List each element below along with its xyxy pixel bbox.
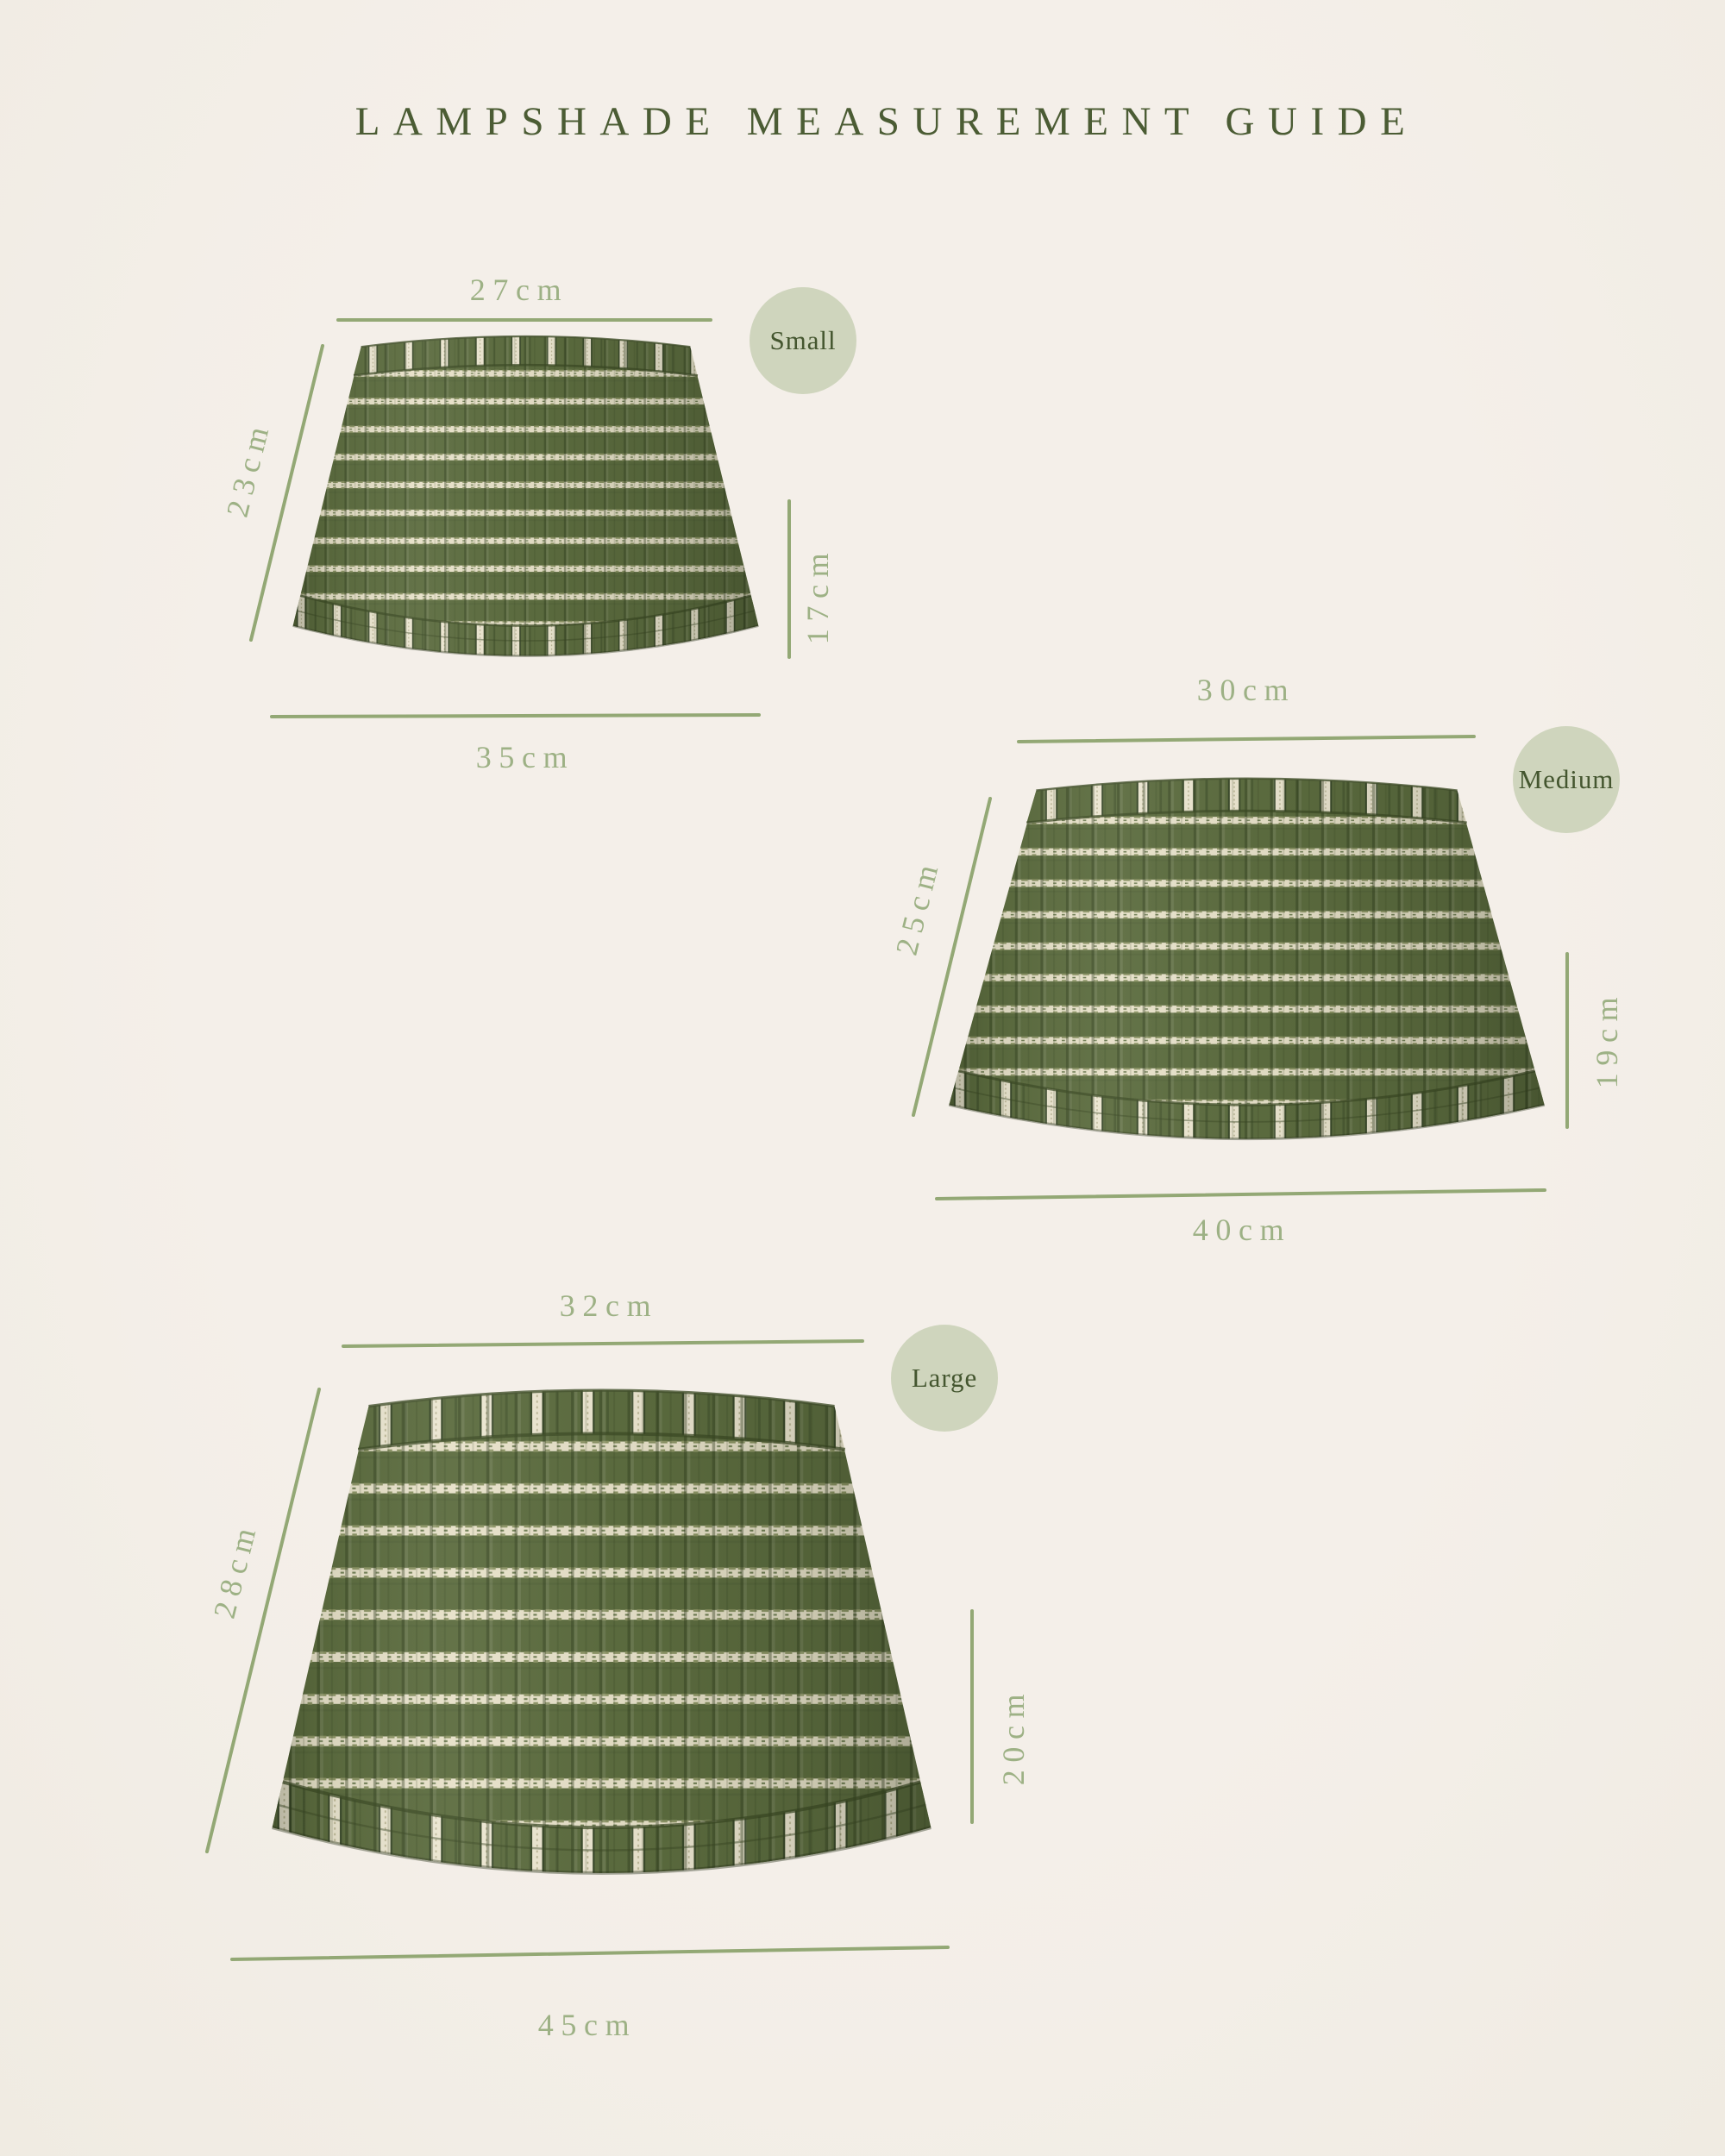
medium-bottom-width-label: 40cm [1193, 1212, 1292, 1248]
medium-size-badge-label: Medium [1519, 764, 1615, 795]
large-slant-height-label: 28cm [206, 1517, 265, 1621]
large-top-width-line [343, 1341, 862, 1346]
medium-drop-height-label: 19cm [1589, 990, 1625, 1089]
medium-size-badge: Medium [1513, 726, 1620, 833]
large-bottom-width-label: 45cm [538, 2007, 637, 2043]
small-bottom-width-label: 35cm [476, 739, 575, 775]
small-bottom-width-line [272, 715, 759, 717]
small-size-badge-label: Small [770, 325, 837, 356]
medium-bottom-width-line [937, 1190, 1545, 1199]
large-top-width-label: 32cm [560, 1288, 659, 1324]
lampshade-measurement-guide: LAMPSHADE MEASUREMENT GUIDE 27cm 23cm 17… [0, 0, 1725, 2156]
small-top-width-label: 27cm [470, 272, 569, 308]
page-title: LAMPSHADE MEASUREMENT GUIDE [355, 98, 1419, 145]
large-size-badge: Large [891, 1325, 998, 1432]
small-lampshade-image [285, 324, 767, 689]
medium-top-width-label: 30cm [1197, 672, 1296, 708]
large-lampshade-image [260, 1372, 943, 1923]
large-size-badge-label: Large [912, 1363, 977, 1394]
medium-top-width-line [1019, 736, 1474, 742]
small-slant-height-label: 23cm [219, 416, 278, 520]
small-size-badge: Small [750, 287, 856, 394]
small-drop-height-label: 17cm [800, 546, 836, 645]
large-bottom-width-line [232, 1947, 948, 1959]
medium-lampshade-image [938, 765, 1555, 1176]
large-drop-height-label: 20cm [995, 1687, 1032, 1786]
